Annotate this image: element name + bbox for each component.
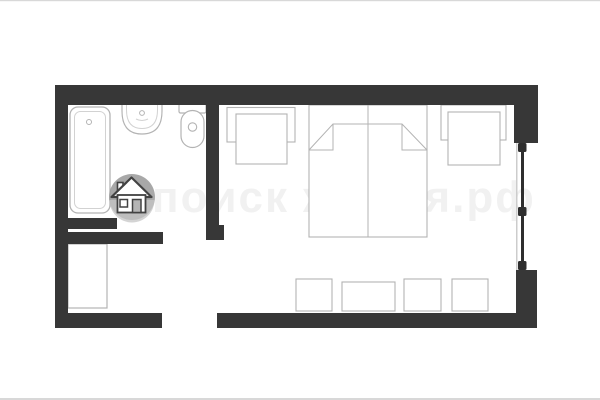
bathtub <box>70 107 110 213</box>
stool-3 <box>452 279 488 311</box>
armchair-left <box>227 108 295 165</box>
wall-bathroom-bottom <box>65 232 163 244</box>
wall-right-lower <box>516 270 537 328</box>
house-icon <box>109 174 155 223</box>
wardrobe <box>68 244 107 308</box>
stool-1 <box>296 279 332 311</box>
wall-right-upper <box>514 85 538 143</box>
wall-left <box>55 85 68 328</box>
double-bed <box>309 105 427 237</box>
wall-bottom-left <box>55 313 162 328</box>
toilet <box>179 104 206 148</box>
sink <box>122 104 162 134</box>
stool-2 <box>404 279 441 311</box>
bathroom-door-panel <box>65 218 117 229</box>
table <box>342 282 395 311</box>
wall-bottom-right <box>217 313 537 328</box>
wall-top <box>55 85 538 105</box>
floor-plan-image: поиск жилья.рф <box>0 0 600 400</box>
armchair-right <box>441 105 506 165</box>
floor-plan-svg: поиск жилья.рф <box>0 0 600 400</box>
photo-frame-top-line <box>0 0 600 1</box>
